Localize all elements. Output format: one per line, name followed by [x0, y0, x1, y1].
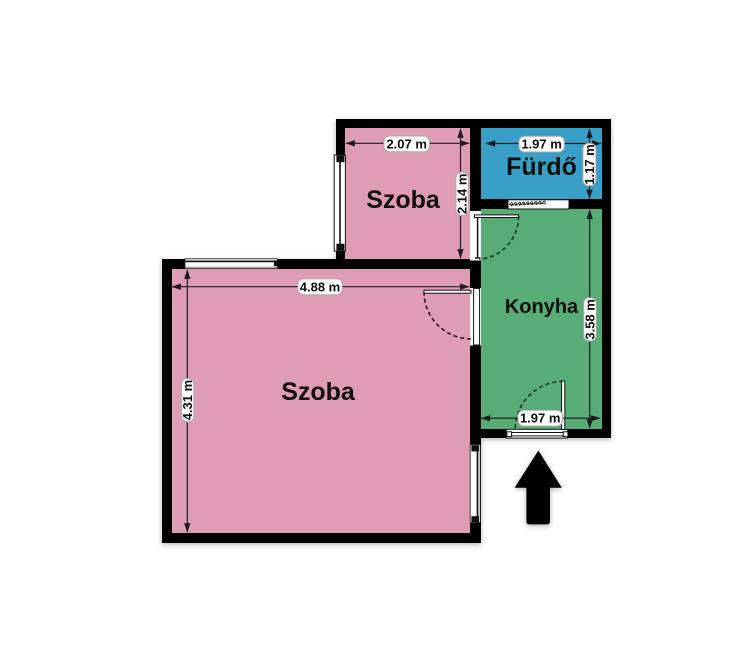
svg-text:Szoba: Szoba: [281, 378, 356, 406]
svg-text:Konyha: Konyha: [505, 296, 579, 318]
svg-text:Szoba: Szoba: [366, 186, 441, 214]
svg-text:3.58 m: 3.58 m: [582, 299, 597, 339]
svg-text:4.88 m: 4.88 m: [300, 279, 340, 294]
svg-text:1.97 m: 1.97 m: [520, 411, 560, 426]
svg-text:Fürdő: Fürdő: [506, 153, 577, 181]
svg-text:4.31 m: 4.31 m: [180, 380, 195, 420]
svg-text:1.97 m: 1.97 m: [521, 137, 561, 152]
svg-text:2.14 m: 2.14 m: [455, 174, 470, 214]
svg-text:1.17 m: 1.17 m: [582, 144, 597, 184]
svg-text:2.07 m: 2.07 m: [386, 136, 426, 151]
